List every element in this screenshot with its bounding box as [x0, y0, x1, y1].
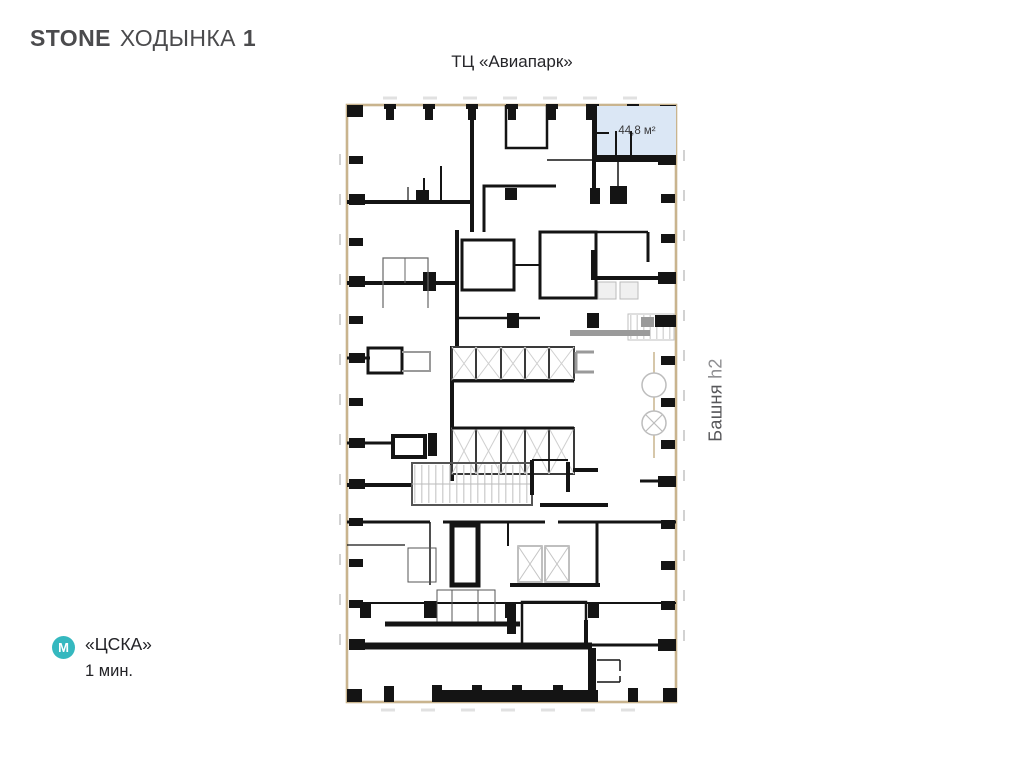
bottom-columns	[384, 685, 638, 702]
metro-station-label: «ЦСКА»	[85, 634, 152, 655]
metro-icon-letter: М	[58, 640, 69, 655]
tower-name: Башня	[706, 384, 726, 441]
left-columns	[349, 156, 365, 650]
unit-highlight[interactable]: 44,8 м²	[592, 106, 676, 162]
tower-code: h2	[706, 358, 726, 379]
metro-walk-time: 1 мин.	[85, 662, 152, 681]
metro-texts: «ЦСКА» 1 мин.	[85, 634, 152, 681]
tower-label: Башня h2	[706, 358, 727, 441]
metro-icon: М	[52, 636, 75, 659]
metro-info: М «ЦСКА» 1 мин.	[52, 634, 152, 681]
floor-plan: 44,8 м²	[0, 0, 1024, 768]
stair-top-right	[570, 282, 676, 340]
interior-walls-upper	[347, 105, 627, 232]
interior-walls-lower	[347, 460, 676, 585]
elevator-core	[452, 346, 594, 481]
right-columns	[658, 152, 676, 651]
unit-area-label: 44,8 м²	[618, 125, 655, 137]
interior-walls-bottom	[349, 590, 676, 700]
